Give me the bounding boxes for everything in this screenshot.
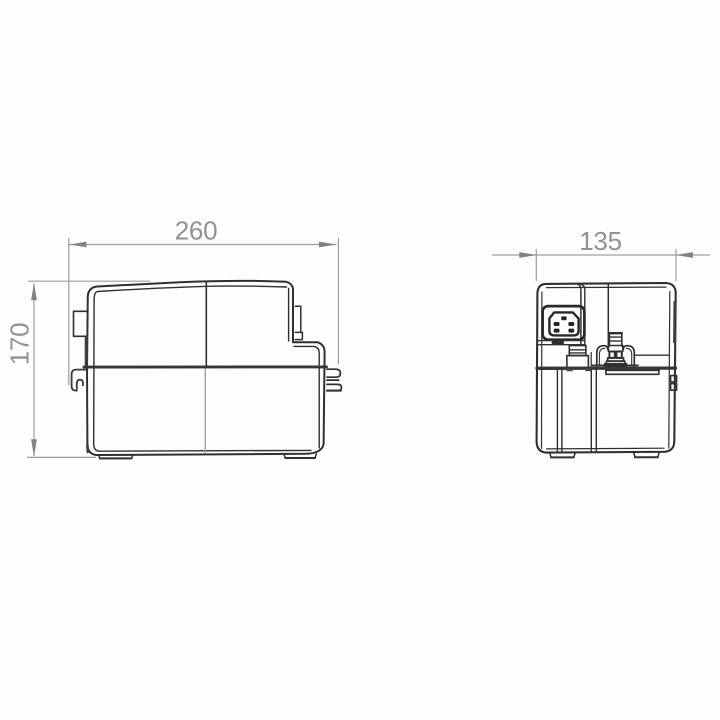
svg-text:135: 135 xyxy=(579,226,621,256)
svg-text:170: 170 xyxy=(5,323,35,365)
svg-text:260: 260 xyxy=(175,216,217,246)
